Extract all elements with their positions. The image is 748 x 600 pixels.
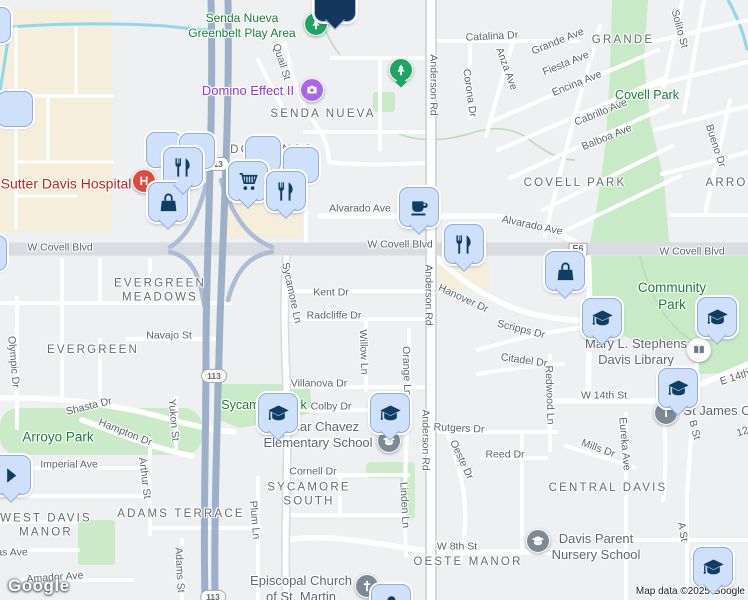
fork-knife-marker[interactable] [163,147,203,187]
fork-knife-marker[interactable] [266,171,306,211]
shopping-cart-marker[interactable] [228,161,268,201]
markers-layer [0,0,748,600]
arrow-right-marker[interactable] [0,455,31,495]
person-marker[interactable] [371,584,411,600]
graduation-cap-marker[interactable] [582,298,622,338]
graduation-cap-marker[interactable] [693,547,733,587]
google-logo[interactable]: Google [8,576,70,596]
graduation-cap-marker[interactable] [370,393,410,433]
selected-place-pin[interactable] [314,0,356,22]
stacked-marker[interactable] [0,91,33,127]
stacked-marker[interactable] [0,235,7,271]
graduation-cap-marker[interactable] [658,368,698,408]
map-viewport[interactable]: Catalina DrCorona DrAnderson RdAnderson … [0,0,748,600]
shopping-bag-marker[interactable] [545,251,585,291]
graduation-cap-marker[interactable] [697,297,737,337]
graduation-cap-marker[interactable] [258,393,298,433]
coffee-cup-marker[interactable] [399,187,439,227]
fork-knife-marker[interactable] [444,224,484,264]
stacked-marker[interactable] [0,7,11,43]
map-attribution: Map data ©2025 Google [636,586,745,597]
